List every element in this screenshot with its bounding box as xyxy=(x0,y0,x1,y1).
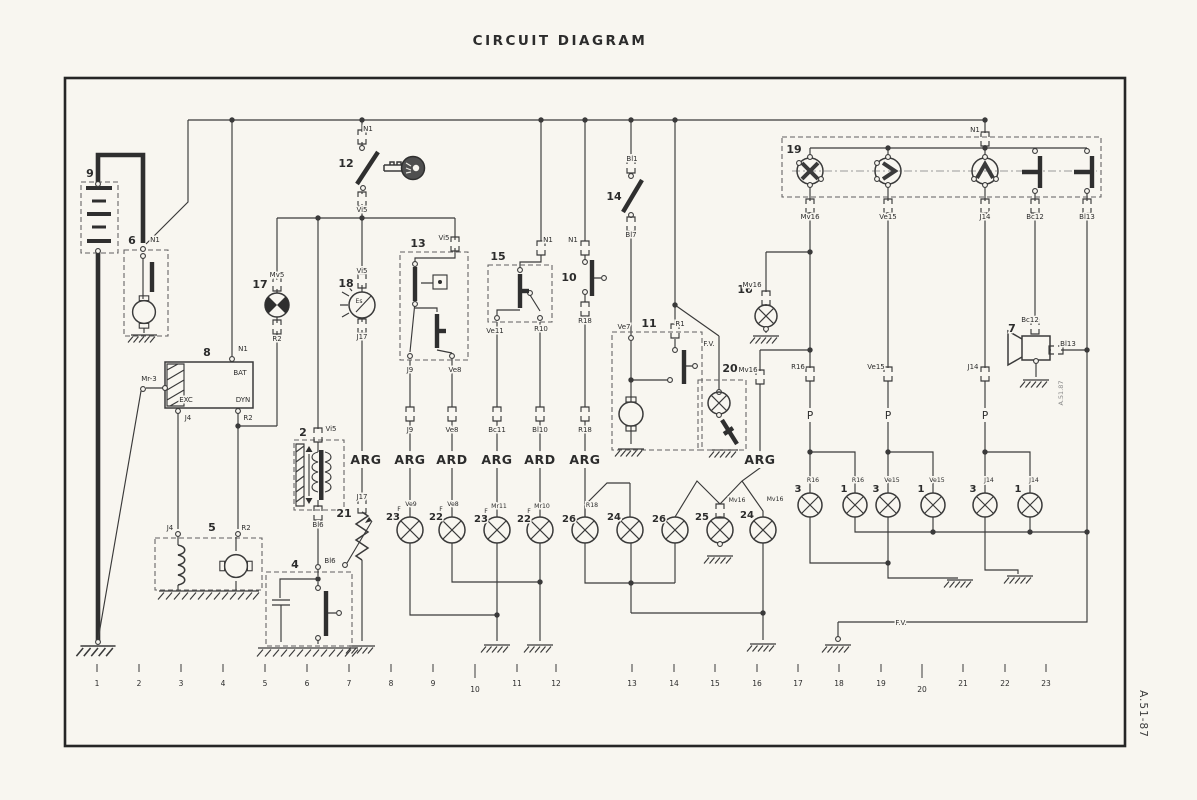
scale-tick: 18 xyxy=(834,679,844,688)
component-lamp-16: 16 Mv16 xyxy=(737,281,777,331)
lamp-code: F xyxy=(397,506,401,513)
doc-reference-inner: A.51.87 xyxy=(1057,380,1065,405)
wire-label: N1 xyxy=(150,236,160,244)
lamp-code: F xyxy=(484,508,488,515)
wire-label: ARD xyxy=(436,452,467,467)
lamp-code: Mr10 xyxy=(534,503,550,510)
component-rheostat: 21 J17 xyxy=(336,493,372,567)
scale-tick: 8 xyxy=(389,679,394,688)
scale-tick: 20 xyxy=(917,685,927,694)
scale-tick: 23 xyxy=(1041,679,1051,688)
component-number: 20 xyxy=(722,362,738,375)
wire-label: Vi5 xyxy=(325,425,336,433)
lamp-code: J14 xyxy=(983,477,994,484)
component-gauge: Es 18 Vi5 J17 xyxy=(338,267,375,341)
wire-label: Mv16 xyxy=(742,281,762,289)
wire-label: ARG xyxy=(481,452,512,467)
wire-label: Ve7 xyxy=(617,323,630,331)
wire-label: ARG xyxy=(394,452,425,467)
component-number: 22 xyxy=(517,514,531,525)
component-switch-15: 15 N1 Ve11 R10 xyxy=(486,236,553,335)
wire-label: J14 xyxy=(979,213,992,221)
wire-label: Bl7 xyxy=(625,231,636,239)
lamp-code: Mv16 xyxy=(767,496,784,503)
lamp-code: J14 xyxy=(1028,477,1039,484)
scale-tick: 22 xyxy=(1000,679,1010,688)
wire-label: Bl6 xyxy=(312,521,324,529)
wire-label: P xyxy=(982,410,988,422)
lamp-count: 1 xyxy=(1015,484,1022,495)
wire-label: J17 xyxy=(356,333,368,341)
wire-label: Mv16 xyxy=(738,366,758,374)
component-number: 5 xyxy=(208,521,216,534)
component-regulator: 8 N1 BAT EXC DYN Mr-3 J4 R2 xyxy=(141,345,253,422)
ground-symbol xyxy=(704,556,733,564)
component-starter: 6 N1 xyxy=(124,234,168,336)
wire-label: N1 xyxy=(363,125,373,133)
wire-label: R18 xyxy=(578,317,592,325)
diagram-border xyxy=(65,78,1125,746)
wire-label: Mv16 xyxy=(800,213,820,221)
reference-scale xyxy=(97,664,1046,678)
component-number: 9 xyxy=(86,167,94,180)
ground-symbol xyxy=(158,591,259,600)
component-horn: 7 Bc12 Bl13 xyxy=(1008,316,1076,365)
component-lighting-switch: 13 Vi5 J9 Ve8 xyxy=(400,234,468,374)
wire-label: P xyxy=(885,410,891,422)
component-number: 12 xyxy=(338,157,353,170)
gauge-label: Es xyxy=(356,298,363,305)
key-icon xyxy=(384,157,425,180)
lamp-code: Ve8 xyxy=(447,501,459,508)
ground-symbol xyxy=(524,645,553,653)
wire-label: ARG xyxy=(350,452,381,467)
wire-label: Ve15 xyxy=(879,213,896,221)
wire-label: ARG xyxy=(569,452,600,467)
component-number: 17 xyxy=(252,278,267,291)
lamp-count: 1 xyxy=(841,484,848,495)
terminal-label: BAT xyxy=(233,369,247,377)
component-number: 19 xyxy=(786,143,801,156)
wire-label: Vi5 xyxy=(356,267,367,275)
component-number: 2 xyxy=(299,426,307,439)
scale-tick: 1 xyxy=(95,679,100,688)
lamp-count: 3 xyxy=(970,484,977,495)
component-dynamo: 5 J4 R2 xyxy=(155,521,262,590)
ground-symbol xyxy=(1004,576,1033,584)
wire-label: J4 xyxy=(166,524,174,532)
wire-label: Bl13 xyxy=(1060,340,1076,348)
wire-label: Bl13 xyxy=(1079,213,1095,221)
wire-label: Bc12 xyxy=(1026,213,1044,221)
component-switch-unit-19: 19 N1 Mv16 Ve15 J14 Bc12 Bl13 xyxy=(782,126,1101,221)
component-number: 18 xyxy=(338,277,353,290)
ground-symbol xyxy=(481,645,510,653)
scale-tick: 2 xyxy=(137,679,142,688)
component-number: 24 xyxy=(740,510,754,521)
circuit-diagram-page: CIRCUIT DIAGRAM A.51-87 A.51.87 xyxy=(0,0,1197,800)
component-number: 11 xyxy=(641,317,656,330)
wire-label: Mr-3 xyxy=(141,375,156,383)
reference-scale-numbers: 1 2 3 4 5 6 7 8 9 10 11 12 13 14 15 16 1… xyxy=(95,679,1051,694)
wire-label: J9 xyxy=(406,426,414,434)
lamp-code: Mv16 xyxy=(729,497,746,504)
scale-tick: 16 xyxy=(752,679,762,688)
scale-tick: 4 xyxy=(221,679,226,688)
component-number: 8 xyxy=(203,346,211,359)
wire-label: Bl10 xyxy=(532,426,548,434)
scale-tick: 12 xyxy=(551,679,561,688)
component-unit-20: 20 F.V. xyxy=(698,340,746,450)
doc-reference: A.51-87 xyxy=(1137,690,1149,738)
component-wiper-motor: 11 Ve7 R1 xyxy=(612,317,702,450)
scale-tick: 5 xyxy=(263,679,268,688)
scale-tick: 3 xyxy=(179,679,184,688)
lamp-code: Mr11 xyxy=(491,503,507,510)
component-number: 24 xyxy=(607,512,621,523)
lamp-code: R16 xyxy=(852,477,864,484)
component-ignition-switch: 12 N1 Vi5 xyxy=(338,125,424,214)
lamp-code: R18 xyxy=(586,502,598,509)
wire-label: Ve11 xyxy=(486,327,503,335)
wire-label: Bl1 xyxy=(626,155,637,163)
wire-label: Ve15 xyxy=(867,363,884,371)
lamp-code: F xyxy=(527,508,531,515)
scale-tick: 9 xyxy=(431,679,436,688)
wire-label: J17 xyxy=(356,493,368,501)
wire-label: R10 xyxy=(534,325,548,333)
wire-label: ARG xyxy=(744,452,775,467)
wire-label: R2 xyxy=(243,414,252,422)
wire-label: F.V. xyxy=(895,619,906,627)
wire-label: Vi5 xyxy=(438,234,449,242)
terminal-label: EXC xyxy=(179,396,193,404)
component-charge-lamp: 17 Mv5 R2 xyxy=(252,271,289,343)
ground-symbol xyxy=(822,645,851,653)
component-number: 6 xyxy=(128,234,136,247)
wire-label: R2 xyxy=(241,524,250,532)
component-number: 25 xyxy=(695,512,709,523)
component-number: 21 xyxy=(336,507,351,520)
component-switch-14: 14 Bl1 Bl7 xyxy=(606,155,642,239)
component-number: 13 xyxy=(410,237,425,250)
scale-tick: 11 xyxy=(512,679,522,688)
wire-label: J4 xyxy=(184,414,192,422)
component-number: 22 xyxy=(429,512,443,523)
wire-label: N1 xyxy=(543,236,553,244)
wire-label: R18 xyxy=(578,426,592,434)
ground-symbol xyxy=(709,450,738,458)
harness-connectors: J9 Ve8 Bc11 Bl10 R18 Mv16 R16 Ve15 J14 xyxy=(406,363,989,434)
component-distributor: 4 Bl6 xyxy=(266,557,352,646)
ground-symbol xyxy=(257,648,358,657)
scale-tick: 6 xyxy=(305,679,310,688)
wire-label: Bc12 xyxy=(1021,316,1039,324)
lamp-count: 3 xyxy=(873,484,880,495)
page-title: CIRCUIT DIAGRAM xyxy=(473,33,648,49)
wire-label: Vi5 xyxy=(356,206,367,214)
wire-label: J9 xyxy=(406,366,414,374)
wire-label: N1 xyxy=(568,236,578,244)
component-number: 15 xyxy=(490,250,505,263)
wire-label: J14 xyxy=(967,363,980,371)
component-number: 7 xyxy=(1008,322,1016,335)
component-number: 26 xyxy=(652,514,666,525)
wire-label: Mv5 xyxy=(270,271,285,279)
component-switch-10: 10 N1 R18 xyxy=(561,236,606,325)
lamp-code: Ve15 xyxy=(884,477,899,484)
scale-tick: 15 xyxy=(710,679,720,688)
scale-tick: 21 xyxy=(958,679,968,688)
ground-symbol xyxy=(747,644,776,652)
lamp-count: 1 xyxy=(918,484,925,495)
cluster-lamps: 3 R16 1 R16 3 Ve15 1 Ve15 3 J14 1 J14 xyxy=(795,477,1042,517)
wire-label: R1 xyxy=(675,320,684,328)
wire-label: N1 xyxy=(970,126,980,134)
wire-label: P xyxy=(807,410,813,422)
wire-label: F.V. xyxy=(703,340,714,348)
component-number: 23 xyxy=(386,512,400,523)
terminal-label: DYN xyxy=(236,396,251,404)
scale-tick: 17 xyxy=(793,679,803,688)
scale-tick: 7 xyxy=(347,679,352,688)
ground-symbol xyxy=(944,580,973,588)
component-number: 10 xyxy=(561,271,577,284)
wire-label: ARD xyxy=(524,452,555,467)
ground-symbol xyxy=(1020,380,1049,388)
lamp-code: F xyxy=(439,506,443,513)
wire-label: Bl6 xyxy=(324,557,336,565)
ground-symbol xyxy=(750,336,779,344)
component-number: 4 xyxy=(291,558,299,571)
component-number: 14 xyxy=(606,190,622,203)
wire-label: Ve8 xyxy=(445,426,458,434)
component-number: 26 xyxy=(562,514,576,525)
circuit-diagram-svg: CIRCUIT DIAGRAM A.51-87 A.51.87 xyxy=(0,0,1197,800)
component-number: 23 xyxy=(474,514,488,525)
scale-tick: 13 xyxy=(627,679,637,688)
lamp-count: 3 xyxy=(795,484,802,495)
lamp-code: Ve9 xyxy=(405,501,417,508)
wire-label: Ve8 xyxy=(448,366,461,374)
wire-label: R16 xyxy=(791,363,805,371)
lamp-code: R16 xyxy=(807,477,819,484)
scale-tick: 14 xyxy=(669,679,679,688)
ground-symbol xyxy=(76,646,115,656)
wire-label: N1 xyxy=(238,345,248,353)
wire-label: Bc11 xyxy=(488,426,506,434)
lamp-code: Ve15 xyxy=(929,477,944,484)
wire-label: R2 xyxy=(272,335,281,343)
scale-tick: 19 xyxy=(876,679,886,688)
scale-tick: 10 xyxy=(470,685,480,694)
ground-symbols xyxy=(76,335,1049,657)
